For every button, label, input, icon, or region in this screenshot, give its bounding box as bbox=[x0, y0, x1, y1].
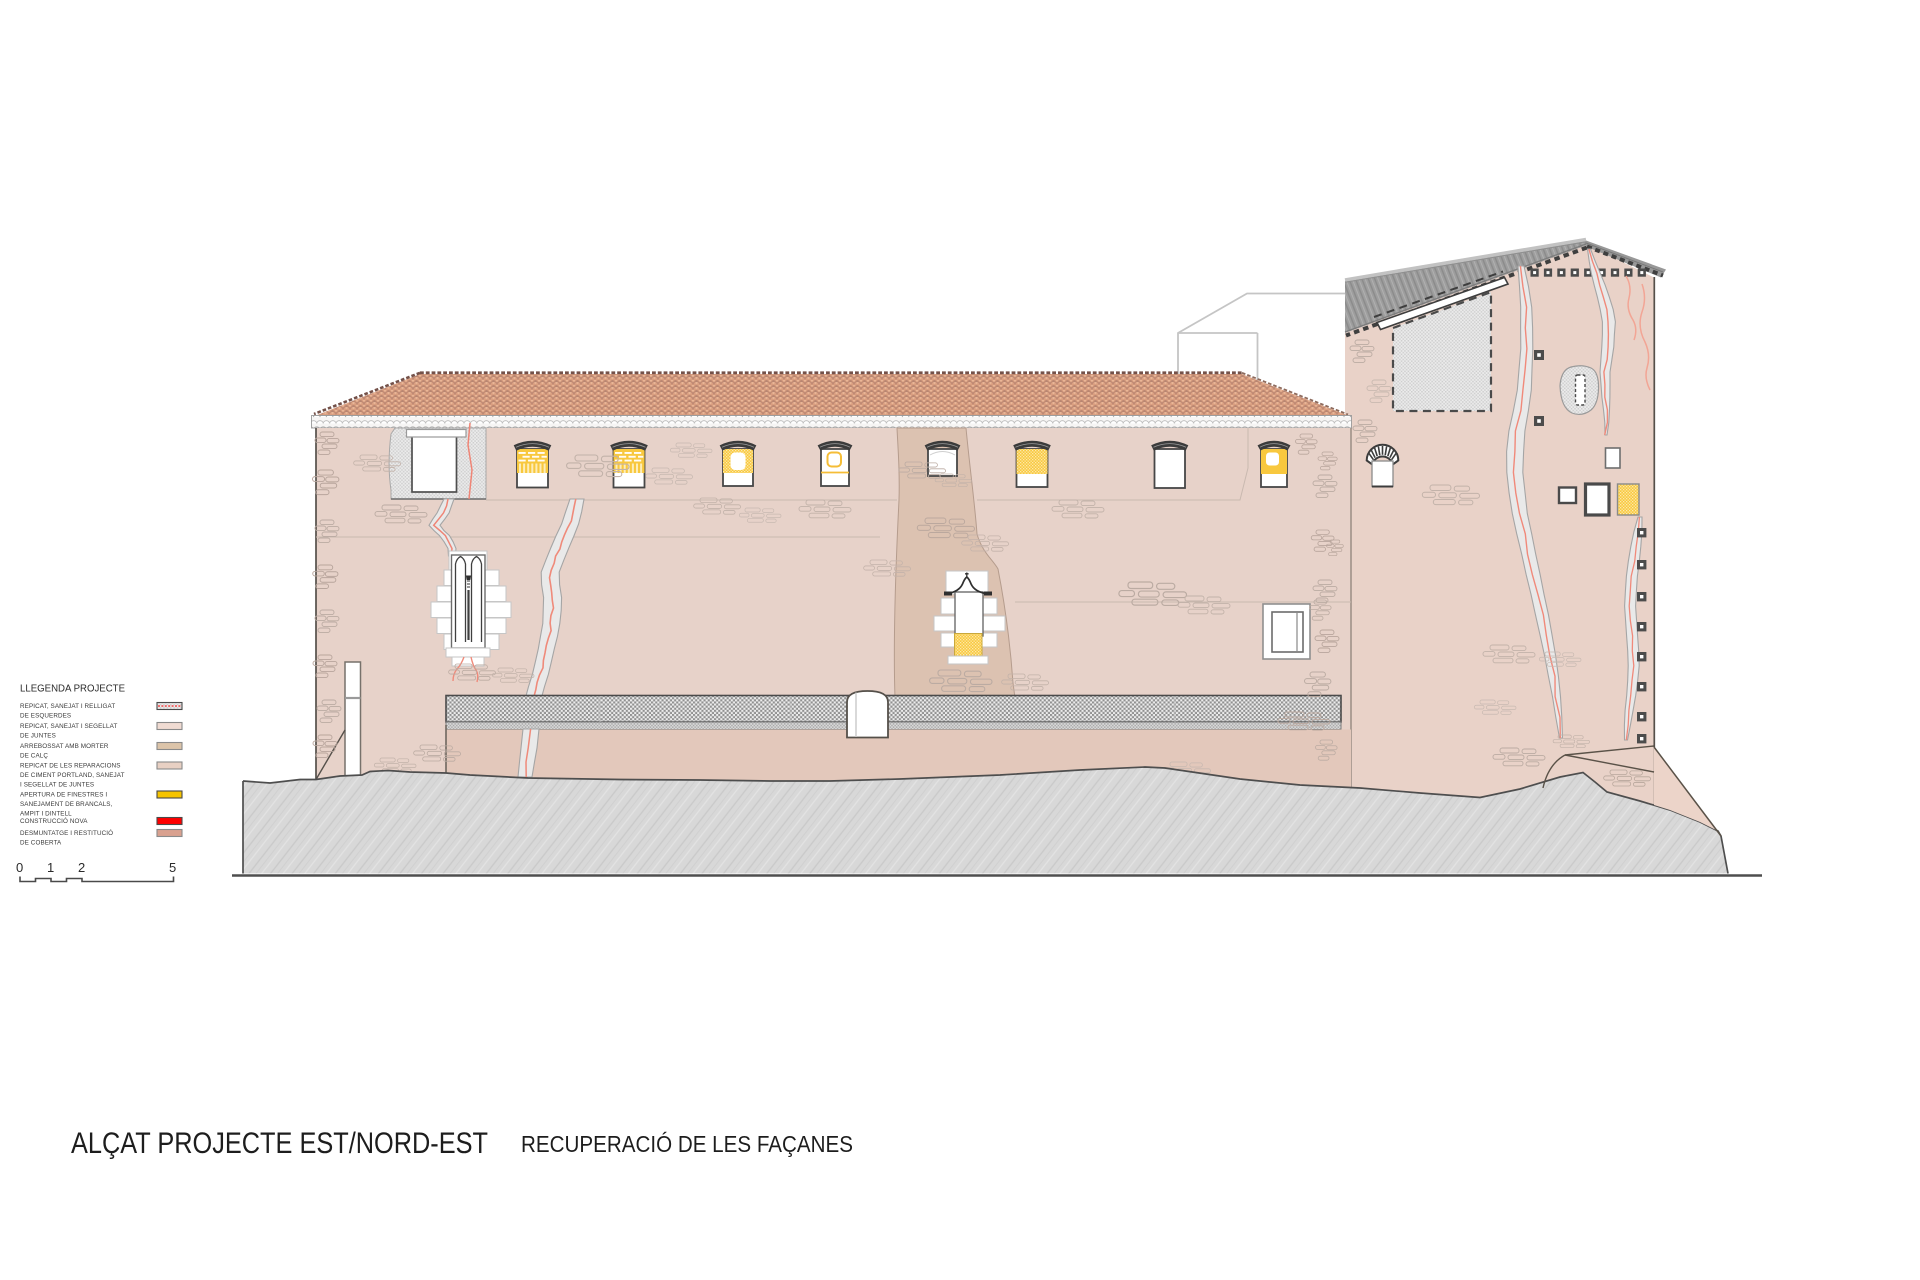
svg-text:RECUPERACIÓ DE LES FAÇANES: RECUPERACIÓ DE LES FAÇANES bbox=[521, 1131, 853, 1157]
svg-text:DE COBERTA: DE COBERTA bbox=[20, 839, 62, 846]
svg-text:REPICAT DE LES REPARACIONS: REPICAT DE LES REPARACIONS bbox=[20, 762, 121, 769]
svg-text:DE CIMENT PORTLAND, SANEJAT: DE CIMENT PORTLAND, SANEJAT bbox=[20, 772, 125, 779]
svg-text:DE ESQUERDES: DE ESQUERDES bbox=[20, 712, 71, 719]
svg-text:2: 2 bbox=[78, 860, 85, 875]
svg-text:LLEGENDA PROJECTE: LLEGENDA PROJECTE bbox=[20, 684, 125, 695]
svg-text:ALÇAT PROJECTE EST/NORD-EST: ALÇAT PROJECTE EST/NORD-EST bbox=[71, 1127, 488, 1160]
svg-text:CONSTRUCCIÓ NOVA: CONSTRUCCIÓ NOVA bbox=[20, 816, 88, 825]
svg-text:ARREBOSSAT AMB MORTER: ARREBOSSAT AMB MORTER bbox=[20, 743, 109, 750]
svg-text:DESMUNTATGE I RESTITUCIÓ: DESMUNTATGE I RESTITUCIÓ bbox=[20, 828, 113, 837]
svg-text:AMPIT I DINTELL: AMPIT I DINTELL bbox=[20, 811, 72, 818]
svg-text:DE CALÇ: DE CALÇ bbox=[20, 752, 48, 759]
svg-text:REPICAT, SANEJAT I RELLIGAT: REPICAT, SANEJAT I RELLIGAT bbox=[20, 703, 115, 710]
svg-text:I SEGELLAT DE JUNTES: I SEGELLAT DE JUNTES bbox=[20, 782, 94, 789]
svg-text:SANEJAMENT DE BRANCALS,: SANEJAMENT DE BRANCALS, bbox=[20, 801, 113, 808]
svg-text:DE JUNTES: DE JUNTES bbox=[20, 732, 56, 739]
svg-text:APERTURA DE FINESTRES I: APERTURA DE FINESTRES I bbox=[20, 791, 107, 798]
svg-text:5: 5 bbox=[169, 860, 176, 875]
svg-text:REPICAT, SANEJAT I SEGELLAT: REPICAT, SANEJAT I SEGELLAT bbox=[20, 723, 117, 730]
svg-text:0: 0 bbox=[16, 860, 23, 875]
svg-text:1: 1 bbox=[47, 860, 54, 875]
